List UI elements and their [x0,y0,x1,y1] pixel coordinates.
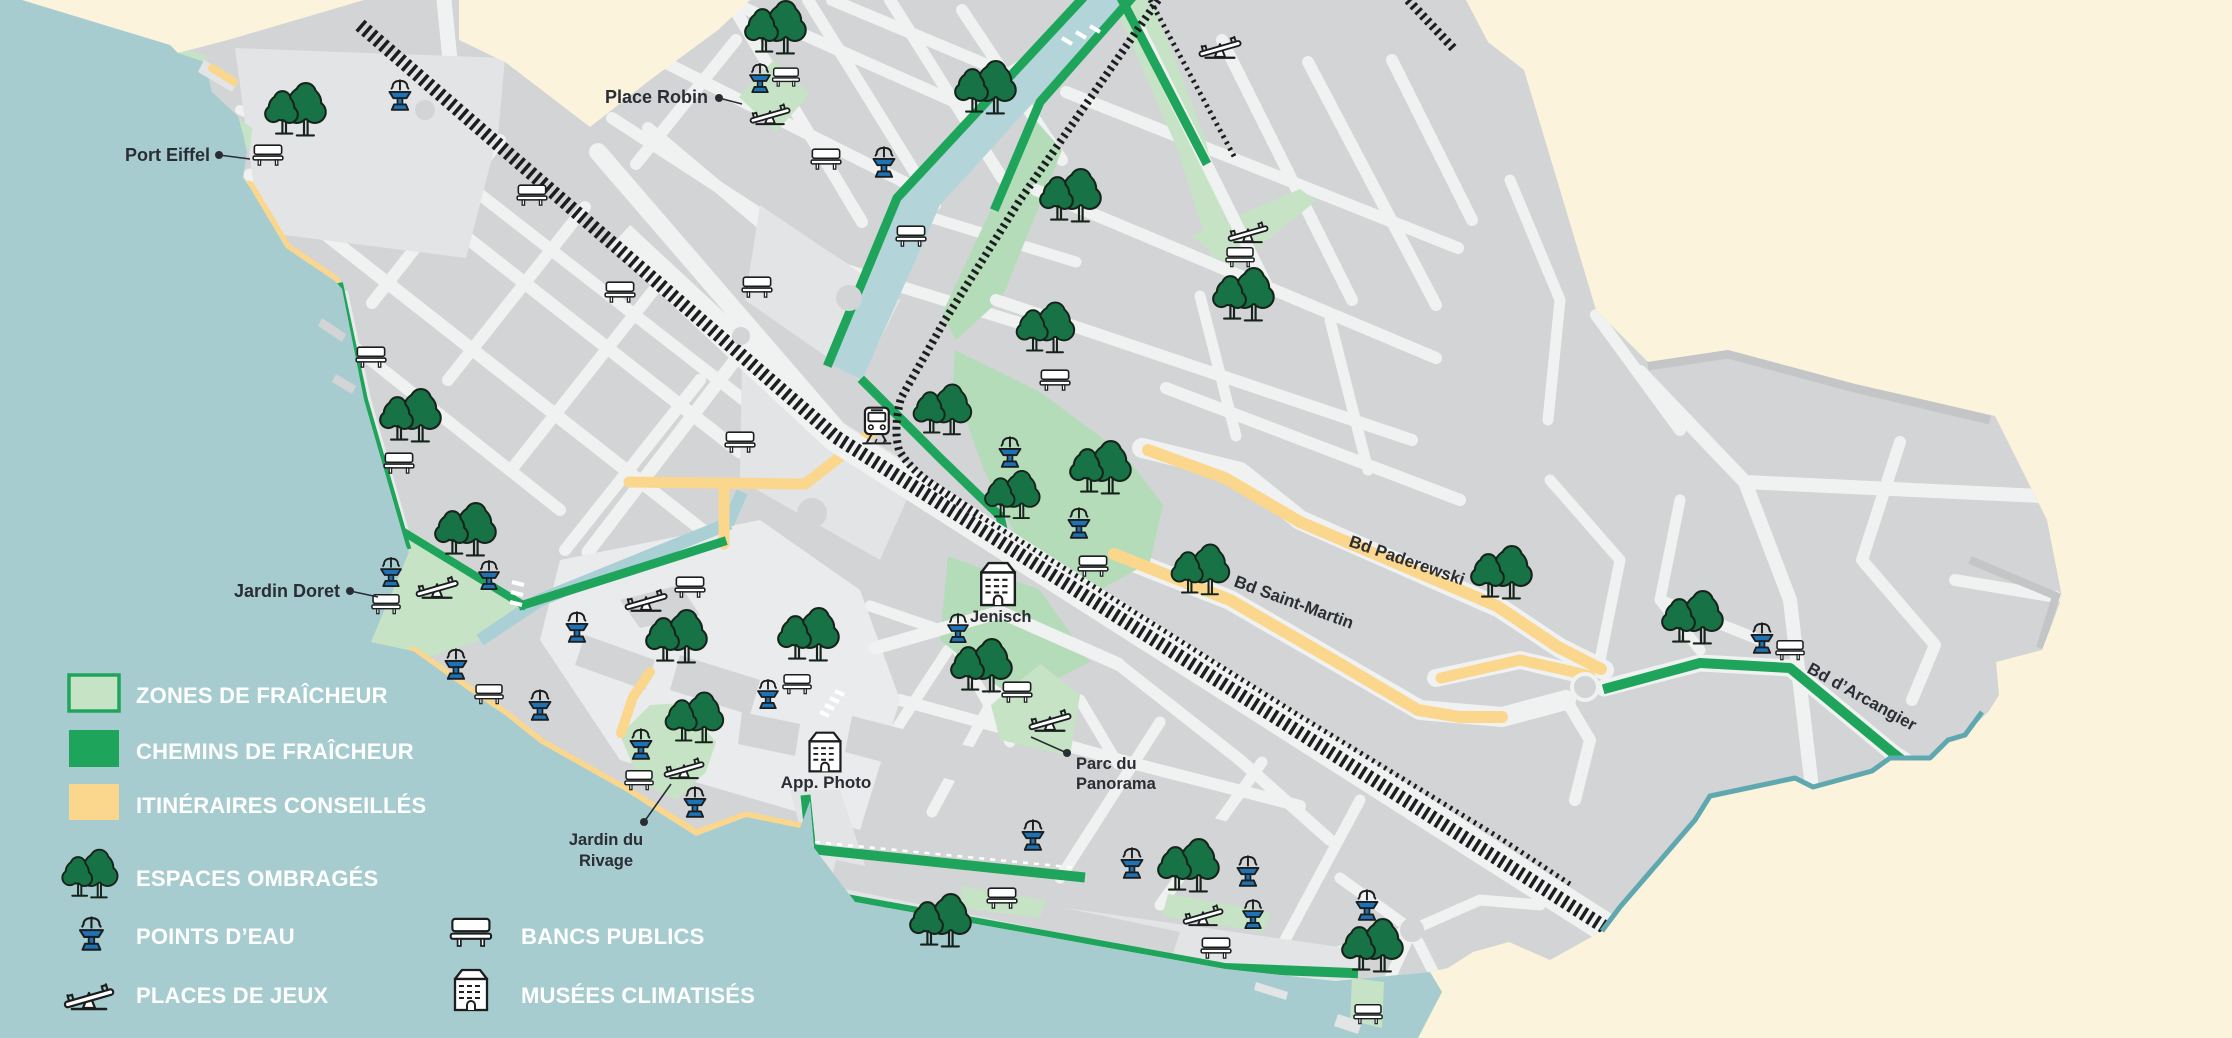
svg-text:PLACES DE JEUX: PLACES DE JEUX [136,983,328,1008]
svg-text:POINTS D’EAU: POINTS D’EAU [136,924,295,949]
svg-text:Parc du: Parc du [1076,755,1137,773]
svg-text:Place Robin: Place Robin [605,87,708,107]
svg-text:Jardin du: Jardin du [569,831,643,849]
svg-text:MUSÉES CLIMATISÉS: MUSÉES CLIMATISÉS [521,983,755,1008]
svg-text:ZONES DE FRAÎCHEUR: ZONES DE FRAÎCHEUR [136,683,388,708]
svg-text:Jenisch: Jenisch [970,608,1031,626]
svg-text:ITINÉRAIRES CONSEILLÉS: ITINÉRAIRES CONSEILLÉS [136,793,426,818]
svg-text:CHEMINS DE FRAÎCHEUR: CHEMINS DE FRAÎCHEUR [136,739,414,764]
svg-text:Port Eiffel: Port Eiffel [125,145,210,165]
svg-text:ESPACES OMBRAGÉS: ESPACES OMBRAGÉS [136,866,378,891]
svg-text:Panorama: Panorama [1076,775,1157,793]
svg-text:App. Photo: App. Photo [781,773,872,792]
svg-text:BANCS PUBLICS: BANCS PUBLICS [521,924,705,949]
svg-text:Rivage: Rivage [579,852,633,870]
svg-text:Jardin Doret: Jardin Doret [234,581,340,601]
